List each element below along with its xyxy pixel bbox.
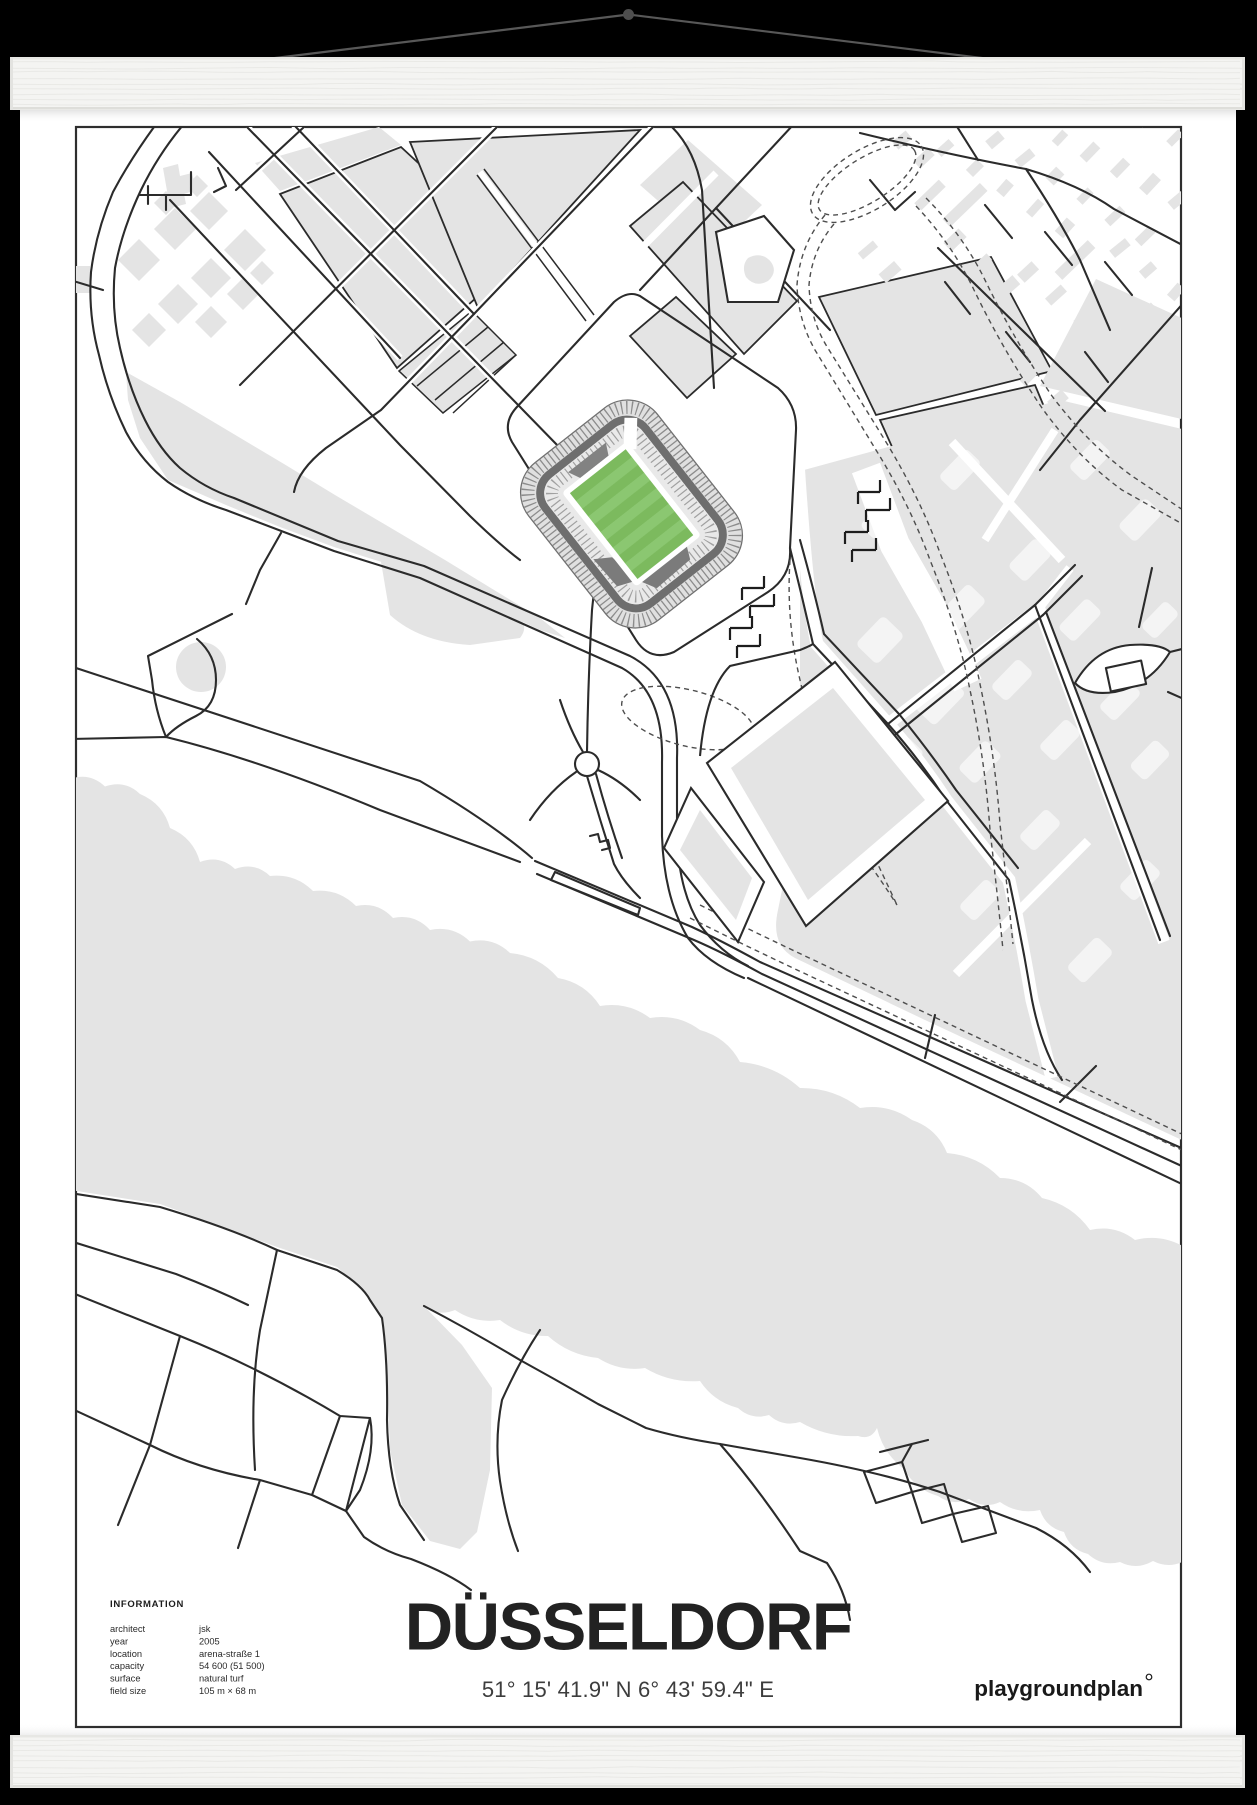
svg-text:DÜSSELDORF: DÜSSELDORF: [405, 1590, 852, 1665]
svg-text:jsk: jsk: [198, 1624, 211, 1634]
svg-text:54 600 (51 500): 54 600 (51 500): [199, 1661, 265, 1671]
svg-text:natural turf: natural turf: [199, 1674, 244, 1684]
svg-text:capacity: capacity: [110, 1661, 144, 1671]
svg-text:year: year: [110, 1636, 128, 1646]
svg-text:surface: surface: [110, 1674, 141, 1684]
svg-text:architect: architect: [110, 1624, 146, 1634]
svg-text:105 m × 68 m: 105 m × 68 m: [199, 1686, 256, 1696]
svg-text:playgroundplan: playgroundplan: [974, 1676, 1143, 1701]
svg-text:field size: field size: [110, 1686, 146, 1696]
svg-text:51° 15' 41.9" N 6° 43' 59.4": 51° 15' 41.9" N 6° 43' 59.4" E: [482, 1677, 774, 1702]
svg-text:arena-straße 1: arena-straße 1: [199, 1649, 260, 1659]
svg-text:location: location: [110, 1649, 142, 1659]
svg-text:INFORMATION: INFORMATION: [110, 1599, 184, 1610]
svg-text:2005: 2005: [199, 1636, 220, 1646]
